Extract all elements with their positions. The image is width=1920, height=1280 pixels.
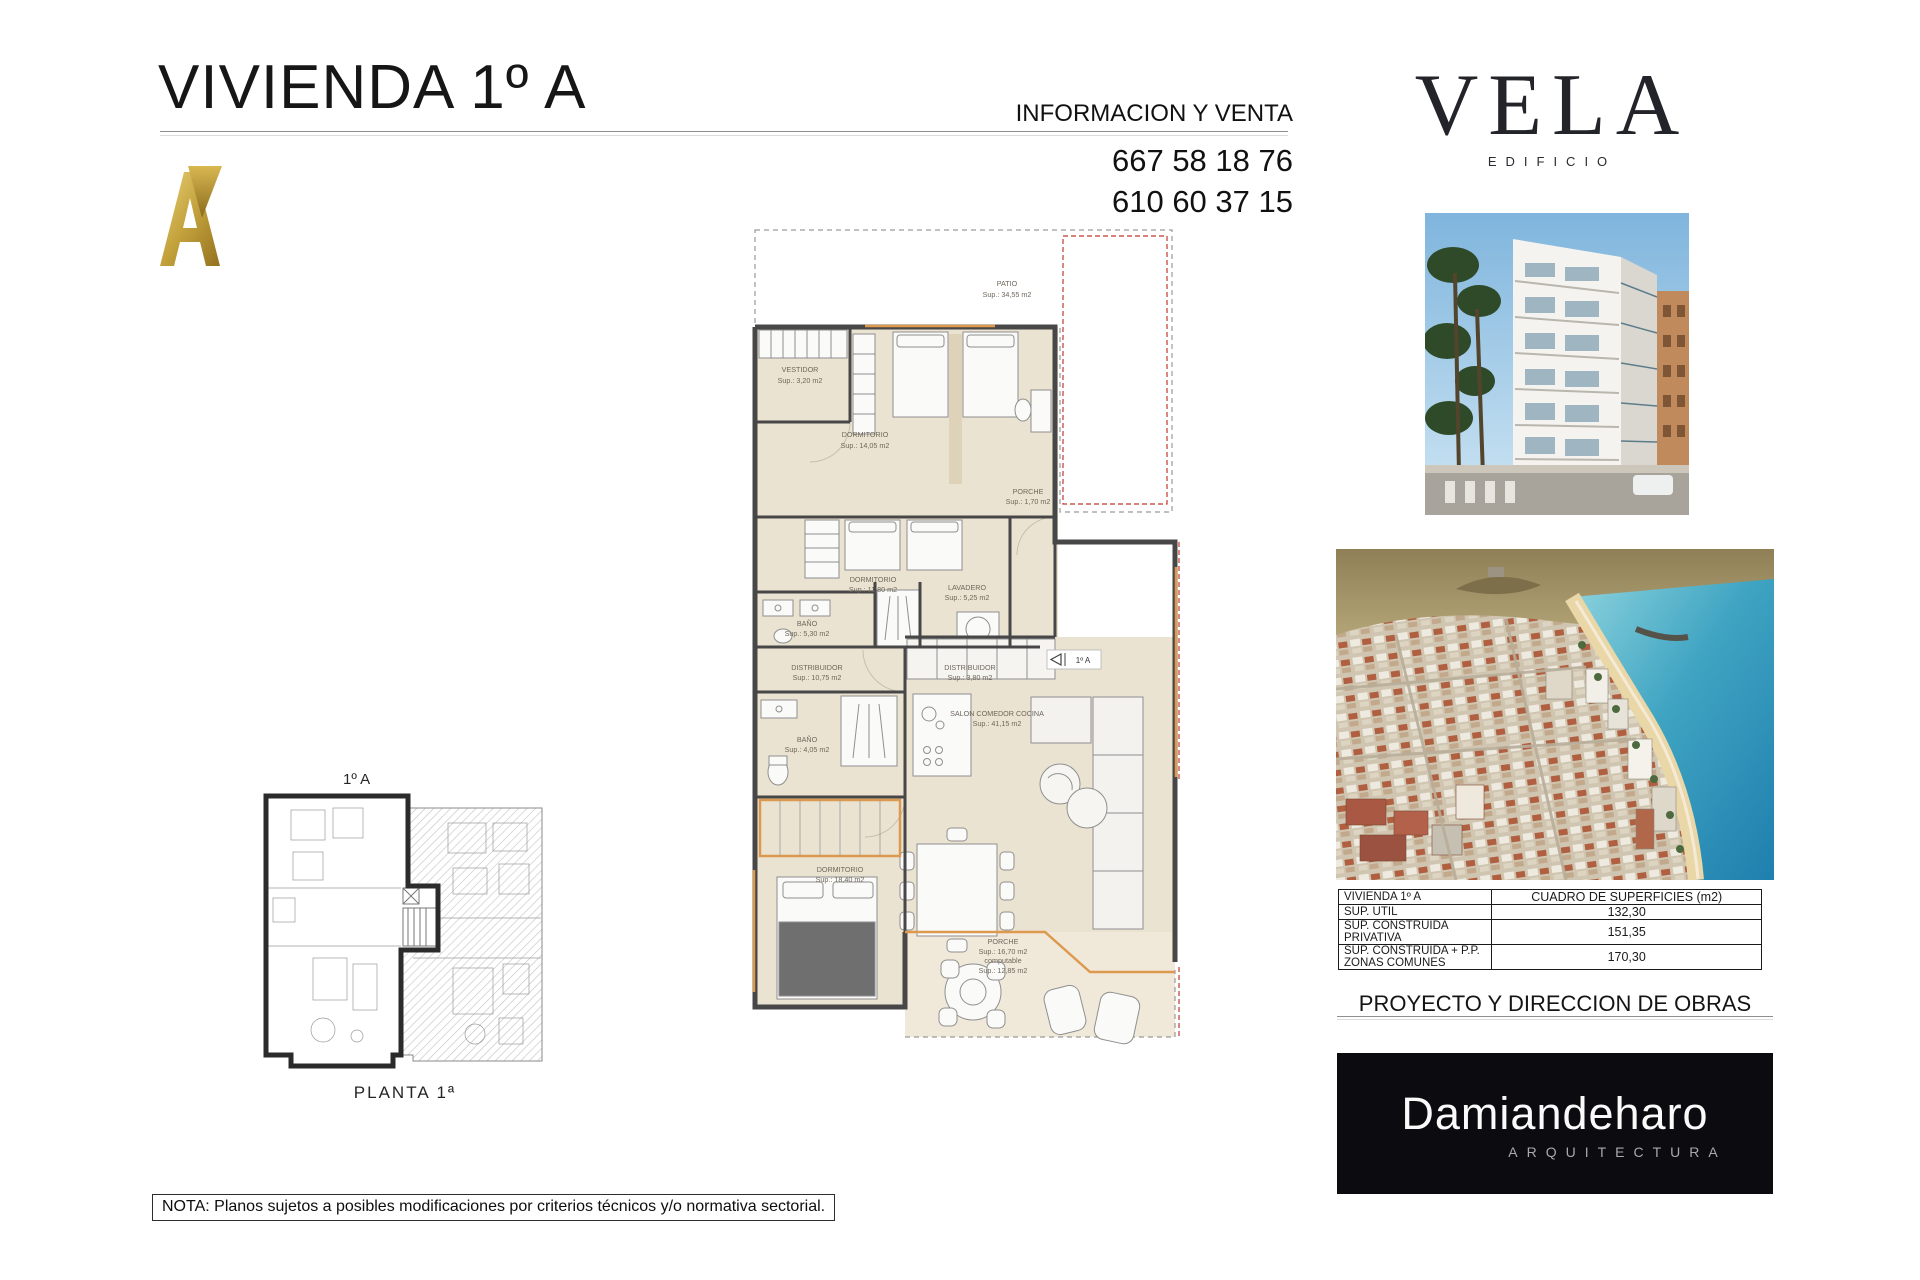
page-title: VIVIENDA 1º A bbox=[158, 52, 587, 123]
phone-number-2: 610 60 37 15 bbox=[850, 181, 1293, 222]
note-box: NOTA: Planos sujetos a posibles modifica… bbox=[152, 1194, 835, 1221]
room-label: DORMITORIO bbox=[842, 430, 889, 439]
table-row: SUP. CONSTRUIDA PRIVATIVA 151,35 bbox=[1339, 920, 1762, 945]
room-area: Sup.: 41,15 m2 bbox=[973, 719, 1022, 728]
main-floor-plan: 1º A PATIO Sup.: 34,55 m2 VESTIDOR Sup.:… bbox=[745, 222, 1182, 1082]
table-row: SUP. UTIL 132,30 bbox=[1339, 905, 1762, 920]
room-label: DISTRIBUIDOR bbox=[944, 663, 996, 672]
table-unit-cell: VIVIENDA 1º A bbox=[1339, 890, 1492, 905]
studio-logo: Damiandeharo ARQUITECTURA bbox=[1337, 1053, 1773, 1194]
room-label: SALON COMEDOR COCINA bbox=[950, 709, 1044, 718]
room-area: Sup.: 3,80 m2 bbox=[948, 673, 993, 682]
room-label: DORMITORIO bbox=[817, 865, 864, 874]
room-area: Sup.: 10,75 m2 bbox=[793, 673, 842, 682]
table-row: SUP. CONSTRUIDA + P.P. ZONAS COMUNES 170… bbox=[1339, 945, 1762, 970]
room-label: BAÑO bbox=[797, 619, 818, 628]
room-label: LAVADERO bbox=[948, 583, 986, 592]
keyplan-unit-label: 1º A bbox=[343, 771, 370, 788]
studio-subtitle: ARQUITECTURA bbox=[1508, 1144, 1726, 1160]
room-area: Sup.: 5,30 m2 bbox=[785, 629, 830, 638]
plan-sheet: VIVIENDA 1º A INFORMACION Y VENTA 667 58… bbox=[0, 0, 1920, 1280]
row-label: SUP. CONSTRUIDA + P.P. ZONAS COMUNES bbox=[1339, 945, 1492, 970]
room-label: BAÑO bbox=[797, 735, 818, 744]
keyplan-caption: PLANTA 1ª bbox=[354, 1083, 456, 1102]
room-label: DORMITORIO bbox=[850, 575, 897, 584]
vela-logo: VELA EDIFICIO bbox=[1412, 58, 1692, 169]
row-value: 151,35 bbox=[1492, 920, 1762, 945]
row-label: SUP. UTIL bbox=[1339, 905, 1492, 920]
room-area: Sup.: 3,20 m2 bbox=[778, 376, 823, 385]
room-label: PORCHE bbox=[988, 937, 1019, 946]
room-area: Sup.: 14,05 m2 bbox=[841, 441, 890, 450]
row-value: 132,30 bbox=[1492, 905, 1762, 920]
entrance-tag: 1º A bbox=[1047, 650, 1101, 669]
room-label: PATIO bbox=[997, 279, 1018, 288]
room-area: Sup.: 18,40 m2 bbox=[816, 875, 865, 884]
room-area: Sup.: 4,05 m2 bbox=[785, 745, 830, 754]
room-label: DISTRIBUIDOR bbox=[791, 663, 843, 672]
key-plan: 1º A PLANTA 1ª bbox=[253, 768, 558, 1108]
table-header-cell: CUADRO DE SUPERFICIES (m2) bbox=[1492, 890, 1762, 905]
table-row: VIVIENDA 1º A CUADRO DE SUPERFICIES (m2) bbox=[1339, 890, 1762, 905]
room-area: Sup.: 12,85 m2 bbox=[979, 966, 1028, 975]
room-label: PORCHE bbox=[1013, 487, 1044, 496]
aerial-photo bbox=[1336, 549, 1774, 880]
entrance-tag-label: 1º A bbox=[1076, 656, 1091, 665]
room-area: Sup.: 34,55 m2 bbox=[983, 290, 1032, 299]
project-heading: PROYECTO Y DIRECCION DE OBRAS bbox=[1337, 991, 1773, 1017]
info-label: INFORMACION Y VENTA bbox=[850, 100, 1293, 128]
vela-subtitle: EDIFICIO bbox=[1412, 154, 1692, 169]
project-rule bbox=[1337, 1016, 1773, 1020]
room-label: VESTIDOR bbox=[782, 365, 819, 374]
room-area-note: computable bbox=[984, 956, 1021, 965]
room-area: Sup.: 5,25 m2 bbox=[945, 593, 990, 602]
room-area: Sup.: 1,70 m2 bbox=[1006, 497, 1051, 506]
row-label: SUP. CONSTRUIDA PRIVATIVA bbox=[1339, 920, 1492, 945]
room-area: Sup.: 16,70 m2 bbox=[979, 947, 1028, 956]
info-block: INFORMACION Y VENTA 667 58 18 76 610 60 … bbox=[850, 100, 1293, 222]
surfaces-table: VIVIENDA 1º A CUADRO DE SUPERFICIES (m2)… bbox=[1338, 889, 1762, 970]
studio-name: Damiandeharo bbox=[1401, 1088, 1708, 1140]
building-photo bbox=[1425, 213, 1689, 515]
gold-a-logo bbox=[158, 160, 224, 268]
row-value: 170,30 bbox=[1492, 945, 1762, 970]
vela-wordmark: VELA bbox=[1412, 58, 1692, 154]
room-area: Sup.: 11,80 m2 bbox=[849, 585, 897, 594]
phone-number-1: 667 58 18 76 bbox=[850, 140, 1293, 181]
